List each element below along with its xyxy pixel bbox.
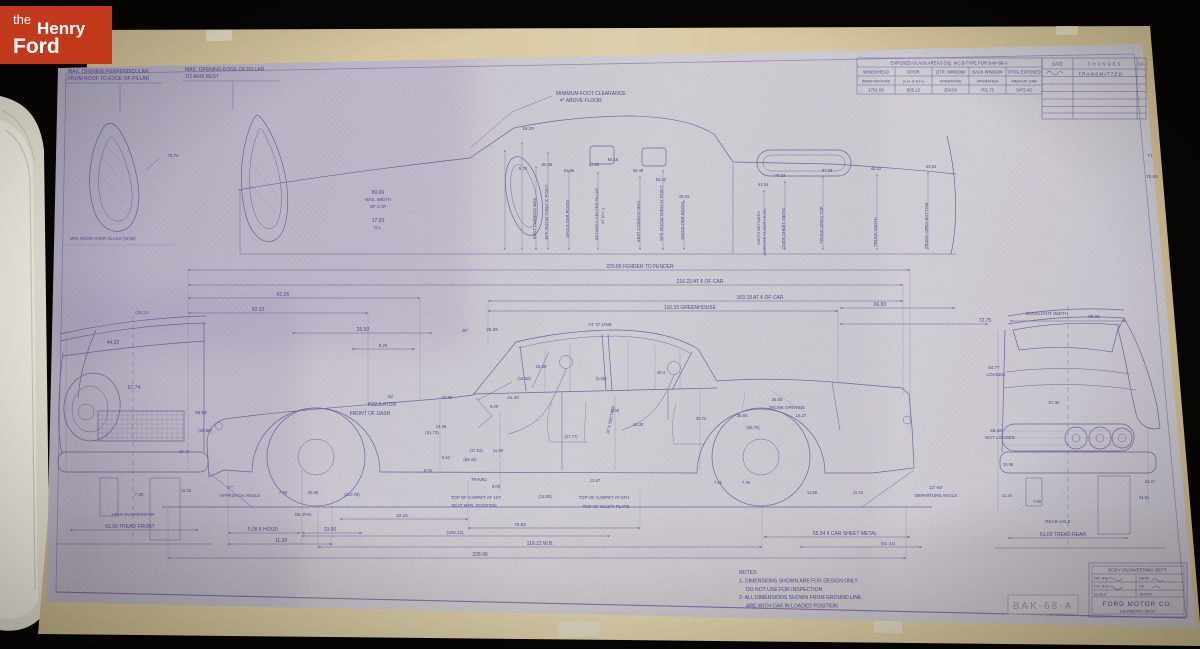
dimension-label: (110.78): [344, 492, 360, 497]
photographed-blueprint-page: MAX. OPENING PERPENDICULARFROM ROOF TO E…: [0, 0, 1200, 649]
dimension-label: BETWEEN CENTER PILLAR: [594, 188, 599, 240]
glass-table-header: BACK WINDOW: [972, 70, 1002, 75]
dimension-label: 6.02: [424, 468, 433, 473]
dimension-label: 64.16: [608, 157, 619, 162]
changes-entry: TRANSMITTED: [1078, 72, 1123, 78]
note-line: 1- DIMENSIONS SHOWN ARE FOR DESIGN ONLY: [739, 578, 858, 584]
glass-table-header: TOTAL EXPOSED: [1007, 70, 1041, 75]
dimension-label: TOP OF CARPET AT 1ST: [451, 495, 502, 500]
dimension-label: 30.73: [696, 416, 707, 421]
book-page-edges: [0, 96, 50, 631]
dimension-label: 17°: [227, 485, 234, 490]
dimension-label: FROM ROOF TO EDGE OF PILLAR: [68, 76, 150, 82]
dimension-label: 9.00: [490, 404, 499, 409]
dimension-label: 7.80: [1033, 499, 1042, 504]
note-line: NOTES:: [739, 570, 758, 576]
dimension-label: 9.00: [492, 484, 501, 489]
dimension-label: 62.65: [589, 162, 600, 167]
title-block-field: CK.: [1139, 584, 1146, 589]
dimension-label: .82: [387, 394, 394, 399]
dimension-label: AT (D.L.): [600, 207, 605, 224]
dimension-label: MAX. WIDTH: [365, 197, 391, 202]
dimension-label: 67.28: [822, 168, 833, 173]
changes-table-header: CHANGES: [1088, 62, 1123, 67]
dimension-label: 45.04: [679, 194, 690, 199]
dimension-label: 78.74: [168, 153, 180, 158]
glass-table-sublabel: OPERATING: [939, 80, 961, 84]
dimension-label: 10.06: [1003, 462, 1014, 467]
dimension-label: T1: [1147, 153, 1153, 158]
dimension-label: (29.11): [135, 310, 149, 315]
dimension-label: (13.82): [538, 494, 552, 499]
dimension-label: APPROACH ANGLE: [220, 493, 261, 498]
dimension-label: MAX. OPENING PERPENDICULAR: [68, 69, 149, 75]
dimension-label: EFF. ROOM THRU 'H' POINT: [659, 185, 664, 241]
dimension-label: 31.40: [507, 395, 519, 400]
note-line: 2- ALL DIMENSIONS SHOWN FROM GROUND LINE: [739, 595, 862, 601]
glass-table-sublabel: (L.H. & R.H.): [903, 80, 925, 84]
dimension-label: OIL PAN: [295, 512, 312, 517]
dimension-label: 60.96: [542, 162, 553, 167]
dimension-label: 54.77: [988, 365, 1000, 370]
dimension-label: SHOULDER ROOM: [565, 200, 570, 238]
dimension-label: 7.30: [135, 492, 144, 497]
dimension-label: 50.10: [252, 307, 265, 313]
logo-prefix: the: [13, 12, 31, 27]
dimension-label: O.L.: [374, 225, 382, 230]
dimension-label: 25.50: [357, 327, 370, 333]
dimension-label: OF CAR: [370, 204, 387, 209]
dimension-label: 11.55: [807, 490, 818, 495]
dimension-label: 11.32: [181, 488, 192, 493]
dimension-label: 116.33 GREENHOUSE: [664, 305, 717, 311]
dimension-label: 228.96: [472, 552, 488, 558]
dimension-label: 5.08 ¢ HOOD: [248, 527, 279, 533]
dimension-label: BACKLIGHT WIDTH: [1026, 311, 1068, 316]
dimension-label: 34.02: [442, 395, 454, 400]
company-name: FORD MOTOR CO.: [1103, 601, 1174, 608]
dimension-label: 35.83: [772, 397, 784, 402]
dimension-label: REAR AXLE: [1045, 519, 1071, 524]
dimension-label: 72.75: [979, 318, 992, 324]
dimension-label: (61.41): [881, 541, 896, 546]
dimension-label: 44.32: [107, 340, 120, 346]
dimension-label: 43.54: [926, 164, 937, 169]
dimension-label: 61.00 TREAD FRONT: [105, 524, 154, 530]
blueprint-artwork: MAX. OPENING PERPENDICULARFROM ROOF TO E…: [0, 0, 1200, 649]
dimension-label: DEPARTURE ANGLE: [915, 493, 958, 498]
dimension-label: 10.44: [179, 449, 190, 454]
dimension-label: LOADED: [987, 372, 1007, 377]
title-block-field: DR. BY: [1094, 576, 1107, 581]
dimension-label: 24.27: [1145, 479, 1156, 484]
dimension-label: TRAVEL: [471, 477, 488, 482]
henry-ford-museum-logo: the Henry Ford: [0, 6, 112, 64]
dimension-label: 216.22 AT ¢ OF CAR: [677, 279, 724, 285]
dimension-label: 8.25: [379, 343, 388, 348]
title-block-field: SCALE: [1094, 592, 1107, 597]
dimension-label: SEAT CUSHION MAX.: [532, 197, 537, 239]
glass-table-value: 1701.03: [868, 88, 884, 93]
dimension-label: 17.00: [372, 218, 385, 224]
dimension-label: 11.34: [853, 490, 864, 495]
dimension-label: EFF. ROOM THRU 'X' POINT: [544, 184, 549, 239]
dimension-label: SEAT MFR. POSITION: [451, 503, 496, 508]
dimension-label: TRUNK OPEN TOP: [819, 206, 824, 243]
dimension-label: 61.00 TREAD REAR: [1040, 532, 1086, 538]
dimension-label: 41.54: [758, 182, 769, 187]
dimension-label: OVER SHEET METAL: [781, 206, 786, 248]
dimension-label: TOP OF CARPET AT 5TH: [579, 495, 630, 500]
dimension-label: 4° ABOVE FLOOR: [560, 98, 602, 104]
company-location: DEARBORN, MICH.: [1120, 609, 1156, 614]
dimension-label: 23.00: [324, 527, 337, 533]
dimension-label: 55.48: [633, 168, 644, 173]
dimension-label: INSULATOR: [368, 402, 397, 408]
dimension-label: (15.62): [517, 376, 531, 381]
dimension-label: TO ARM REST: [185, 74, 219, 80]
dimension-label: AT 'O' LINE: [588, 322, 612, 327]
dimension-label: 61.26: [277, 292, 290, 298]
glass-table-value: 905.12: [907, 88, 921, 93]
glass-table-value: 254.50: [944, 88, 958, 93]
dimension-label: 25.39: [486, 327, 498, 332]
dimension-label: 35.84: [737, 413, 748, 418]
dimension-label: 9.52: [442, 455, 451, 460]
dimension-label: 11.29: [275, 538, 287, 544]
dimension-label: 55.34 ¢ CAR SHEET METAL: [813, 531, 878, 537]
dimension-label: 57.36: [1049, 400, 1061, 405]
dimension-label: 220.86 FENDER TO FENDER: [606, 264, 674, 270]
dimension-label: 12.87: [590, 478, 601, 483]
title-block-field: DATE: [1139, 576, 1149, 581]
dimension-label: 65.26: [1088, 314, 1100, 319]
dimension-label: MINIMUM FOOT CLEARANCE: [556, 91, 626, 97]
dimension-label: 42.15: [396, 513, 408, 518]
dimension-label: 56.36: [990, 428, 1002, 433]
dimension-label: 78.23: [775, 173, 786, 178]
dimension-label: 163.18 AT ¢ OF CAR: [737, 295, 784, 301]
dimension-label: TRUNK WIDTH: [873, 217, 878, 246]
glass-table-value: 701.72: [981, 88, 995, 93]
dimension-label: 67.74: [128, 385, 141, 391]
dimension-label: 48.22: [871, 166, 882, 171]
dimension-label: 7.02: [714, 480, 723, 485]
note-line: DO NOT USE FOR INSPECTION: [746, 587, 823, 593]
dimension-label: 11.49: [493, 448, 504, 453]
dimension-label: 16.29: [522, 126, 534, 131]
dimension-label: 25.85: [308, 490, 319, 495]
glass-table-sublabel: WRAP AROUND: [862, 80, 891, 84]
dimension-label: 5.75: [519, 166, 528, 171]
dimension-label: (47.53): [469, 448, 483, 453]
dimension-label: SEAT CUSHION MAX.: [636, 200, 641, 242]
dimension-label: NOT LOADED: [985, 435, 1015, 440]
dimension-label: (41.73): [425, 430, 439, 435]
dimension-label: (27.77): [564, 434, 578, 439]
dimension-label: 11.34: [1002, 493, 1013, 498]
dimension-label: TOP OF SCUFF PLATE: [583, 504, 630, 509]
dimension-label: W/HOUSE FLOOR LEVEL: [762, 207, 767, 255]
drawing-number-stamp: BAK-68-A: [1013, 601, 1073, 612]
dimension-label: SHOULDER ROOM: [680, 202, 685, 240]
title-block-dept: BODY ENGINEERING DEPT.: [1108, 568, 1167, 573]
dimension-label: WIDTH BETWEEN: [756, 211, 761, 245]
dimension-label: 61.06: [564, 168, 575, 173]
dimension-label: FRONT OF DASH: [350, 411, 391, 417]
dimension-label: 75.62: [1146, 174, 1158, 179]
changes-table-header: DATE: [1052, 62, 1063, 67]
dimension-label: 16.27: [796, 413, 808, 418]
changes-table-header: CK.: [1138, 62, 1145, 67]
glass-table-header: WINDSHIELD: [863, 70, 889, 75]
dimension-label: 24.36: [436, 424, 447, 429]
dimension-label: 40.4: [657, 370, 666, 375]
dimension-label: 76.93: [514, 522, 526, 527]
dimension-label: 80.06: [372, 190, 385, 196]
dimension-label: (56.70): [746, 425, 760, 430]
dimension-label: 25.59: [536, 364, 548, 369]
dimension-label: 24.51: [1139, 495, 1150, 500]
glass-table-title: EXPOSED GLASS AREAS (SQ. IN.) B TYPE FOR…: [891, 61, 1008, 66]
dimension-label: 59.96: [195, 410, 207, 415]
dimension-label: MIN. ROOM OVER GLASS (18.59): [70, 236, 136, 241]
dimension-label: MAX. OPENING EDGE OF PILLAR: [185, 67, 265, 73]
glass-table-header: DOOR: [907, 70, 919, 75]
glass-table-value: 3472.43: [1016, 88, 1032, 93]
dimension-label: 119.12 W.B.: [527, 541, 554, 547]
dimension-label: TRUNK OPENING: [769, 405, 806, 410]
glass-table-sublabel: AREA OF CAR: [1011, 80, 1037, 84]
glass-table-sublabel: OPERATING: [976, 80, 998, 84]
dimension-label: 48°: [462, 328, 469, 333]
dimension-label: 53.42: [656, 177, 667, 182]
dimension-label: TRUNK OPEN BOTTOM: [924, 202, 929, 249]
note-line: ARE WITH CAR IN LOADED POSITION: [746, 604, 838, 610]
title-block-field: CH. BY: [1094, 584, 1107, 589]
dimension-label: 7.86: [279, 490, 288, 495]
dimension-label: HIGH SUSPENSION: [112, 512, 155, 517]
dimension-label: 66.93: [874, 302, 887, 308]
dimension-label: 16.30: [633, 422, 644, 427]
dimension-label: 13°-50': [929, 485, 943, 490]
dimension-label: (25.80): [198, 428, 212, 433]
dimension-label: 7.46: [742, 480, 751, 485]
dimension-label: (3.46): [596, 376, 608, 381]
dimension-label: 5.00: [611, 408, 620, 413]
dimension-label: (108.12): [446, 530, 464, 535]
title-block-field: TENTH: [1139, 592, 1152, 597]
dimension-label: (84.40): [463, 457, 477, 462]
glass-table-header: QTR. WINDOW: [936, 70, 965, 75]
logo-name-bottom: Ford: [13, 35, 60, 59]
